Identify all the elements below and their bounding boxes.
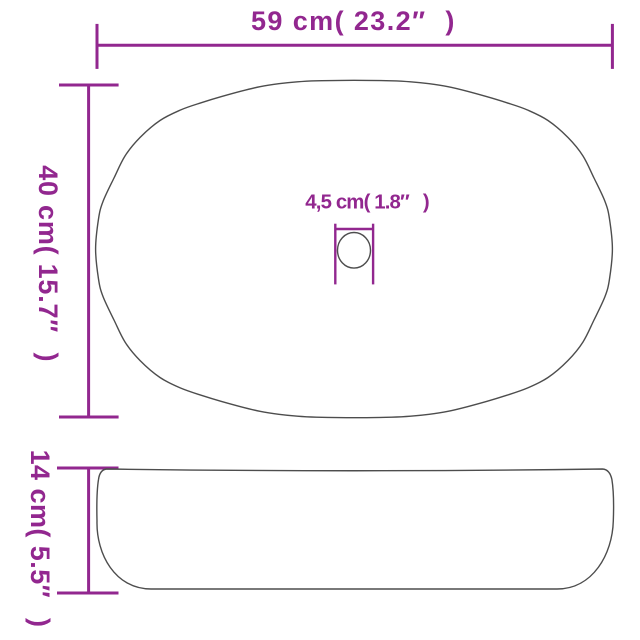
svg-text:40 cm( 15.7″): 40 cm( 15.7″) [33,165,63,361]
